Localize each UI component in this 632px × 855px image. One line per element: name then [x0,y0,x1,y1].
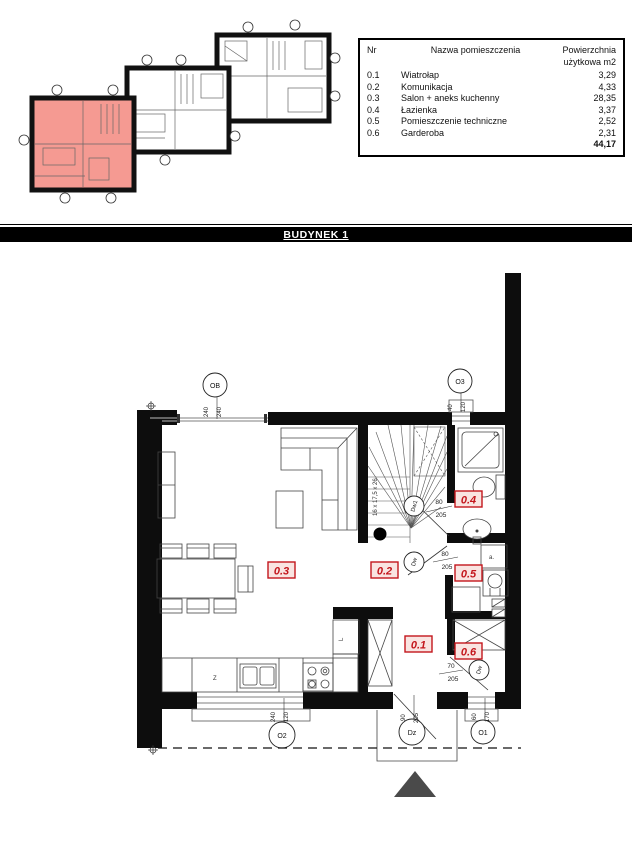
legend-row: 0.6Garderoba2,31 [367,128,616,140]
chair [238,566,253,592]
overview-unit-right [217,35,329,121]
divider-rule [0,224,632,225]
svg-text:90: 90 [401,714,407,721]
chair [160,544,182,558]
room-label-lazienka: 0.4 [461,495,476,507]
washbasin [463,519,491,539]
legend-row: 0.3Salon + aneks kuchenny28,35 [367,93,616,105]
boiler-letter: a. [489,555,494,561]
svg-text:O2: O2 [277,733,286,740]
shower-tray [458,428,503,472]
living-furniture [157,428,357,613]
entrance-arrow [394,771,436,797]
svg-text:70: 70 [447,663,455,670]
svg-text:O1: O1 [478,730,487,737]
svg-text:240: 240 [271,711,277,722]
chair [187,599,209,613]
dining-table [157,559,235,598]
svg-text:120: 120 [284,711,290,722]
legend-header-area: Powierzchnia użytkowa m2 [554,45,616,68]
overview-unit-highlighted [32,98,134,190]
room-label-wiatrolap: 0.1 [411,640,426,652]
svg-text:60: 60 [472,713,478,720]
overview-key-plan [5,8,355,213]
main-floor-plan: 16 x 17,5 x 26 a. [0,255,632,855]
svg-text:170: 170 [485,711,491,722]
svg-text:205: 205 [436,512,447,519]
room-legend-table: Nr Nazwa pomieszczenia Powierzchnia użyt… [358,38,625,157]
svg-text:205: 205 [442,564,453,571]
chair [187,544,209,558]
window-jamb [264,414,267,423]
svg-text:80: 80 [435,499,443,506]
svg-text:120: 120 [461,401,467,412]
svg-text:240: 240 [217,406,223,417]
kitchen-fixtures: Z L [162,620,359,692]
kitchen-sink [240,664,276,688]
cooktop [303,663,333,691]
bathroom-fixtures [458,428,505,544]
stair-newel-post [374,528,387,541]
sink-letter: Z [213,676,217,682]
tech-appliance [452,587,480,612]
svg-text:80: 80 [441,551,449,558]
room-label-komunikacja: 0.2 [377,566,392,578]
svg-text:240: 240 [204,406,210,417]
window-jamb [177,414,180,423]
room-label-garderoba: 0.6 [461,647,477,659]
building-banner: BUDYNEK 1 [0,227,632,242]
legend-header-nr: Nr [367,45,397,68]
legend-row: 0.5Pomieszczenie techniczne2,52 [367,116,616,128]
coffee-table [276,491,303,528]
svg-text:205: 205 [414,712,420,723]
legend-row: 0.2Komunikacja4,33 [367,82,616,94]
legend-header-name: Nazwa pomieszczenia [401,45,550,68]
room-label-techniczne: 0.5 [461,569,477,581]
svg-text:Dz: Dz [408,730,417,737]
overview-unit-middle [127,68,229,152]
svg-text:OB: OB [210,383,220,390]
floor-plan-sheet: Nr Nazwa pomieszczenia Powierzchnia użyt… [0,0,632,855]
svg-text:205: 205 [448,676,459,683]
fridge-letter: L [339,637,345,641]
chair [160,599,182,613]
stair-dimension-note: 16 x 17,5 x 26 [373,478,379,516]
corner-sofa [281,428,357,530]
staircase: 16 x 17,5 x 26 [368,425,447,543]
survey-marker [146,401,156,411]
legend-total-row: 44,17 [367,139,616,151]
chair [214,544,236,558]
legend-row: 0.1Wiatrołap3,29 [367,70,616,82]
legend-total-value: 44,17 [554,139,616,151]
legend-row: 0.4Łazienka3,37 [367,105,616,117]
room-label-salon: 0.3 [274,566,289,578]
chair [214,599,236,613]
fridge-cabinet [333,620,359,654]
svg-text:O3: O3 [455,379,464,386]
svg-text:40: 40 [448,404,454,411]
building-banner-title: BUDYNEK 1 [283,229,348,241]
exterior-walls [137,273,521,748]
